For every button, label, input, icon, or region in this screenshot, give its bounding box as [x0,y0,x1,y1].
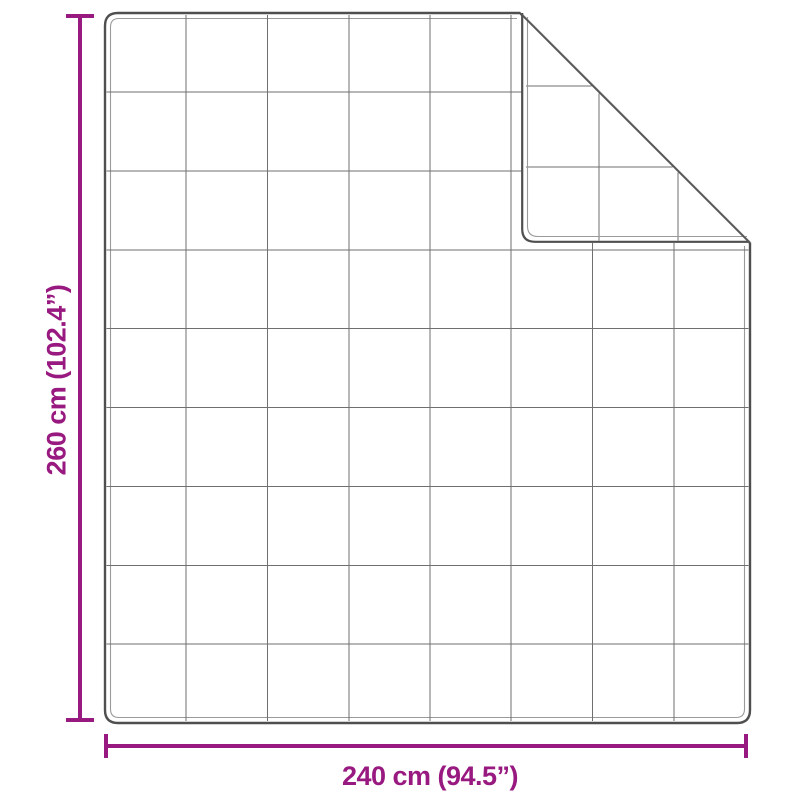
width-dimension-line [104,734,748,758]
height-dimension-label: 260 cm (102.4”) [42,285,73,476]
folded-corner-flap [520,12,751,243]
blanket-outline [105,13,750,723]
width-dimension-label: 240 cm (94.5”) [342,761,518,792]
blanket-drawing [0,0,800,800]
dimension-diagram: 260 cm (102.4”) 240 cm (94.5”) [0,0,800,800]
